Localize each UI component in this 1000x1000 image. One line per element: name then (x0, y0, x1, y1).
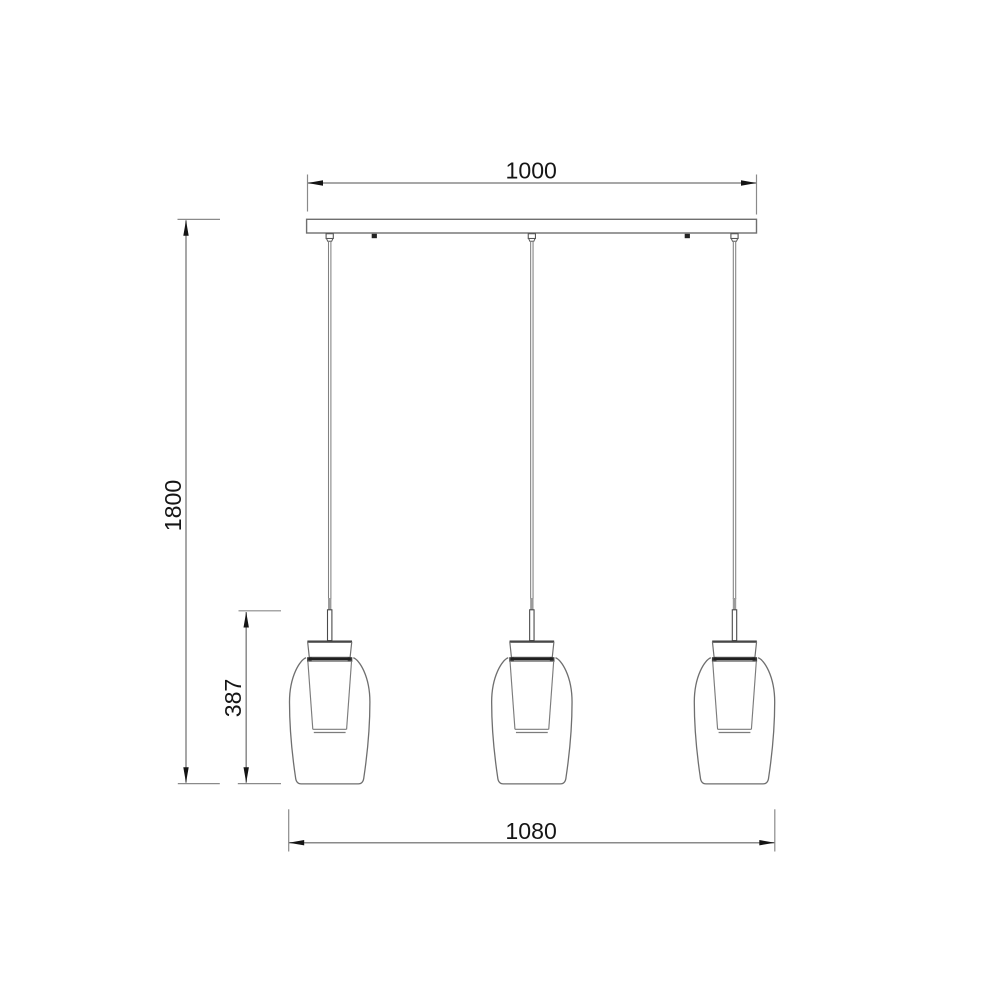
svg-text:1080: 1080 (505, 818, 556, 844)
svg-text:1800: 1800 (160, 480, 186, 531)
svg-text:387: 387 (220, 679, 246, 718)
svg-text:1000: 1000 (506, 158, 557, 184)
